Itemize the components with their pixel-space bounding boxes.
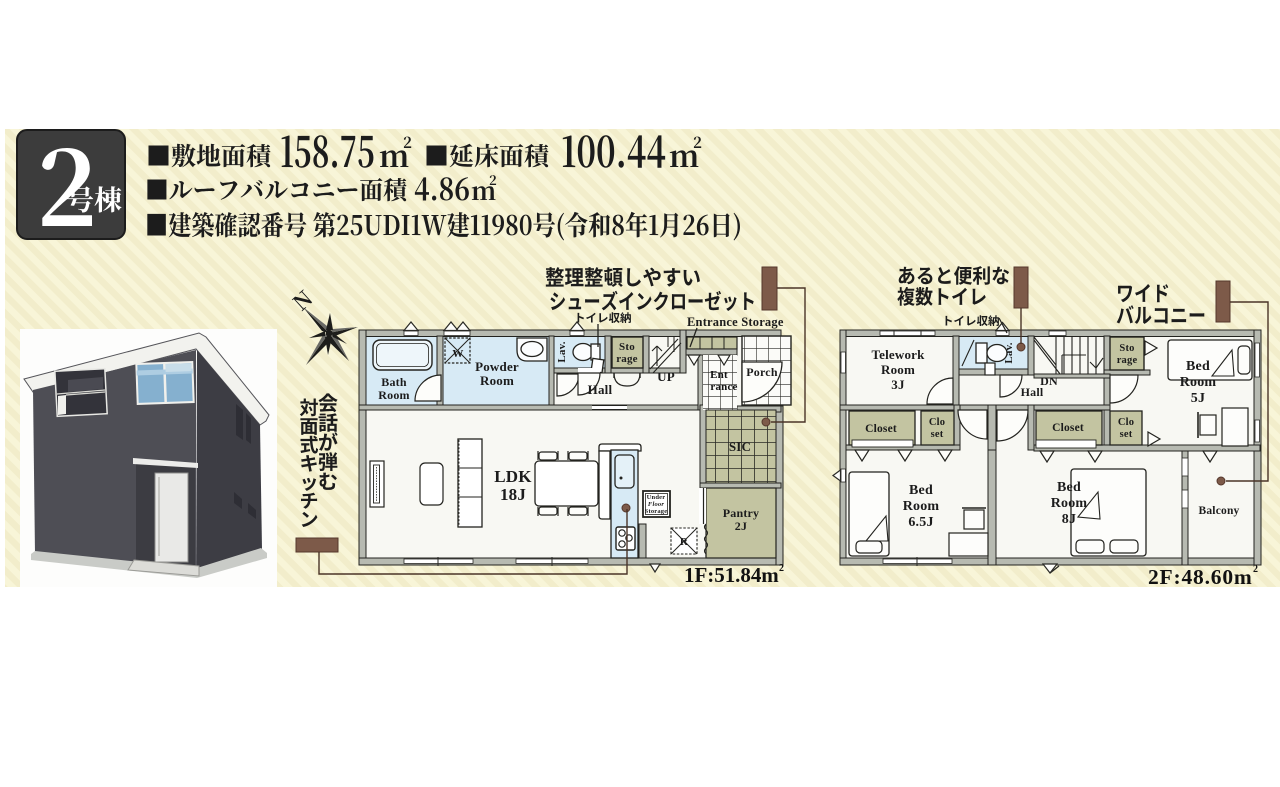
svg-text:Under: Under: [647, 494, 666, 501]
svg-text:LDK: LDK: [494, 467, 532, 486]
svg-text:Closet: Closet: [865, 423, 897, 435]
svg-text:Clo: Clo: [929, 417, 945, 428]
svg-text:18J: 18J: [500, 485, 526, 504]
svg-text:Room: Room: [480, 373, 514, 388]
svg-text:1F:51.84m: 1F:51.84m: [684, 563, 779, 587]
svg-text:Bed: Bed: [1186, 359, 1210, 374]
svg-text:Powder: Powder: [475, 359, 519, 374]
svg-text:Floor: Floor: [648, 501, 664, 508]
svg-text:2F:48.60m: 2F:48.60m: [1148, 565, 1252, 589]
svg-text:3J: 3J: [891, 377, 905, 392]
svg-text:Room: Room: [881, 362, 915, 377]
svg-text:Room: Room: [378, 388, 409, 402]
svg-text:UP: UP: [657, 369, 675, 384]
svg-text:Room: Room: [1180, 375, 1217, 390]
svg-text:Bath: Bath: [381, 375, 407, 389]
svg-text:Ent: Ent: [710, 369, 728, 381]
svg-text:6.5J: 6.5J: [908, 515, 933, 530]
svg-text:2: 2: [779, 563, 784, 574]
svg-text:Telework: Telework: [871, 347, 925, 362]
svg-text:Closet: Closet: [1052, 422, 1084, 434]
svg-text:rage: rage: [616, 353, 638, 365]
svg-text:Hall: Hall: [1021, 385, 1044, 399]
svg-text:Sto: Sto: [1119, 343, 1134, 354]
svg-text:rage: rage: [1117, 355, 1138, 366]
svg-text:SIC: SIC: [729, 439, 751, 454]
svg-text:set: set: [931, 429, 944, 440]
svg-text:Entrance Storage: Entrance Storage: [687, 315, 784, 329]
svg-text:Room: Room: [903, 499, 940, 514]
svg-text:Sto: Sto: [619, 341, 635, 353]
svg-text:Storage: Storage: [645, 508, 668, 515]
svg-text:W: W: [452, 348, 463, 360]
svg-text:R: R: [680, 536, 689, 548]
svg-text:8J: 8J: [1062, 512, 1076, 527]
svg-text:Bed: Bed: [1057, 480, 1081, 495]
svg-text:Hall: Hall: [588, 382, 613, 397]
svg-text:5J: 5J: [1191, 391, 1205, 406]
svg-text:rance: rance: [710, 381, 737, 393]
svg-text:set: set: [1120, 429, 1133, 440]
svg-text:2J: 2J: [735, 519, 747, 533]
svg-text:2: 2: [1253, 564, 1258, 575]
svg-text:Lav.: Lav.: [556, 341, 568, 362]
svg-text:Balcony: Balcony: [1198, 505, 1239, 517]
svg-text:Pantry: Pantry: [723, 506, 760, 520]
svg-text:Clo: Clo: [1118, 417, 1134, 428]
svg-text:Room: Room: [1051, 496, 1088, 511]
svg-text:Porch: Porch: [746, 365, 778, 379]
svg-text:Lav.: Lav.: [1003, 342, 1015, 363]
svg-text:Bed: Bed: [909, 483, 933, 498]
